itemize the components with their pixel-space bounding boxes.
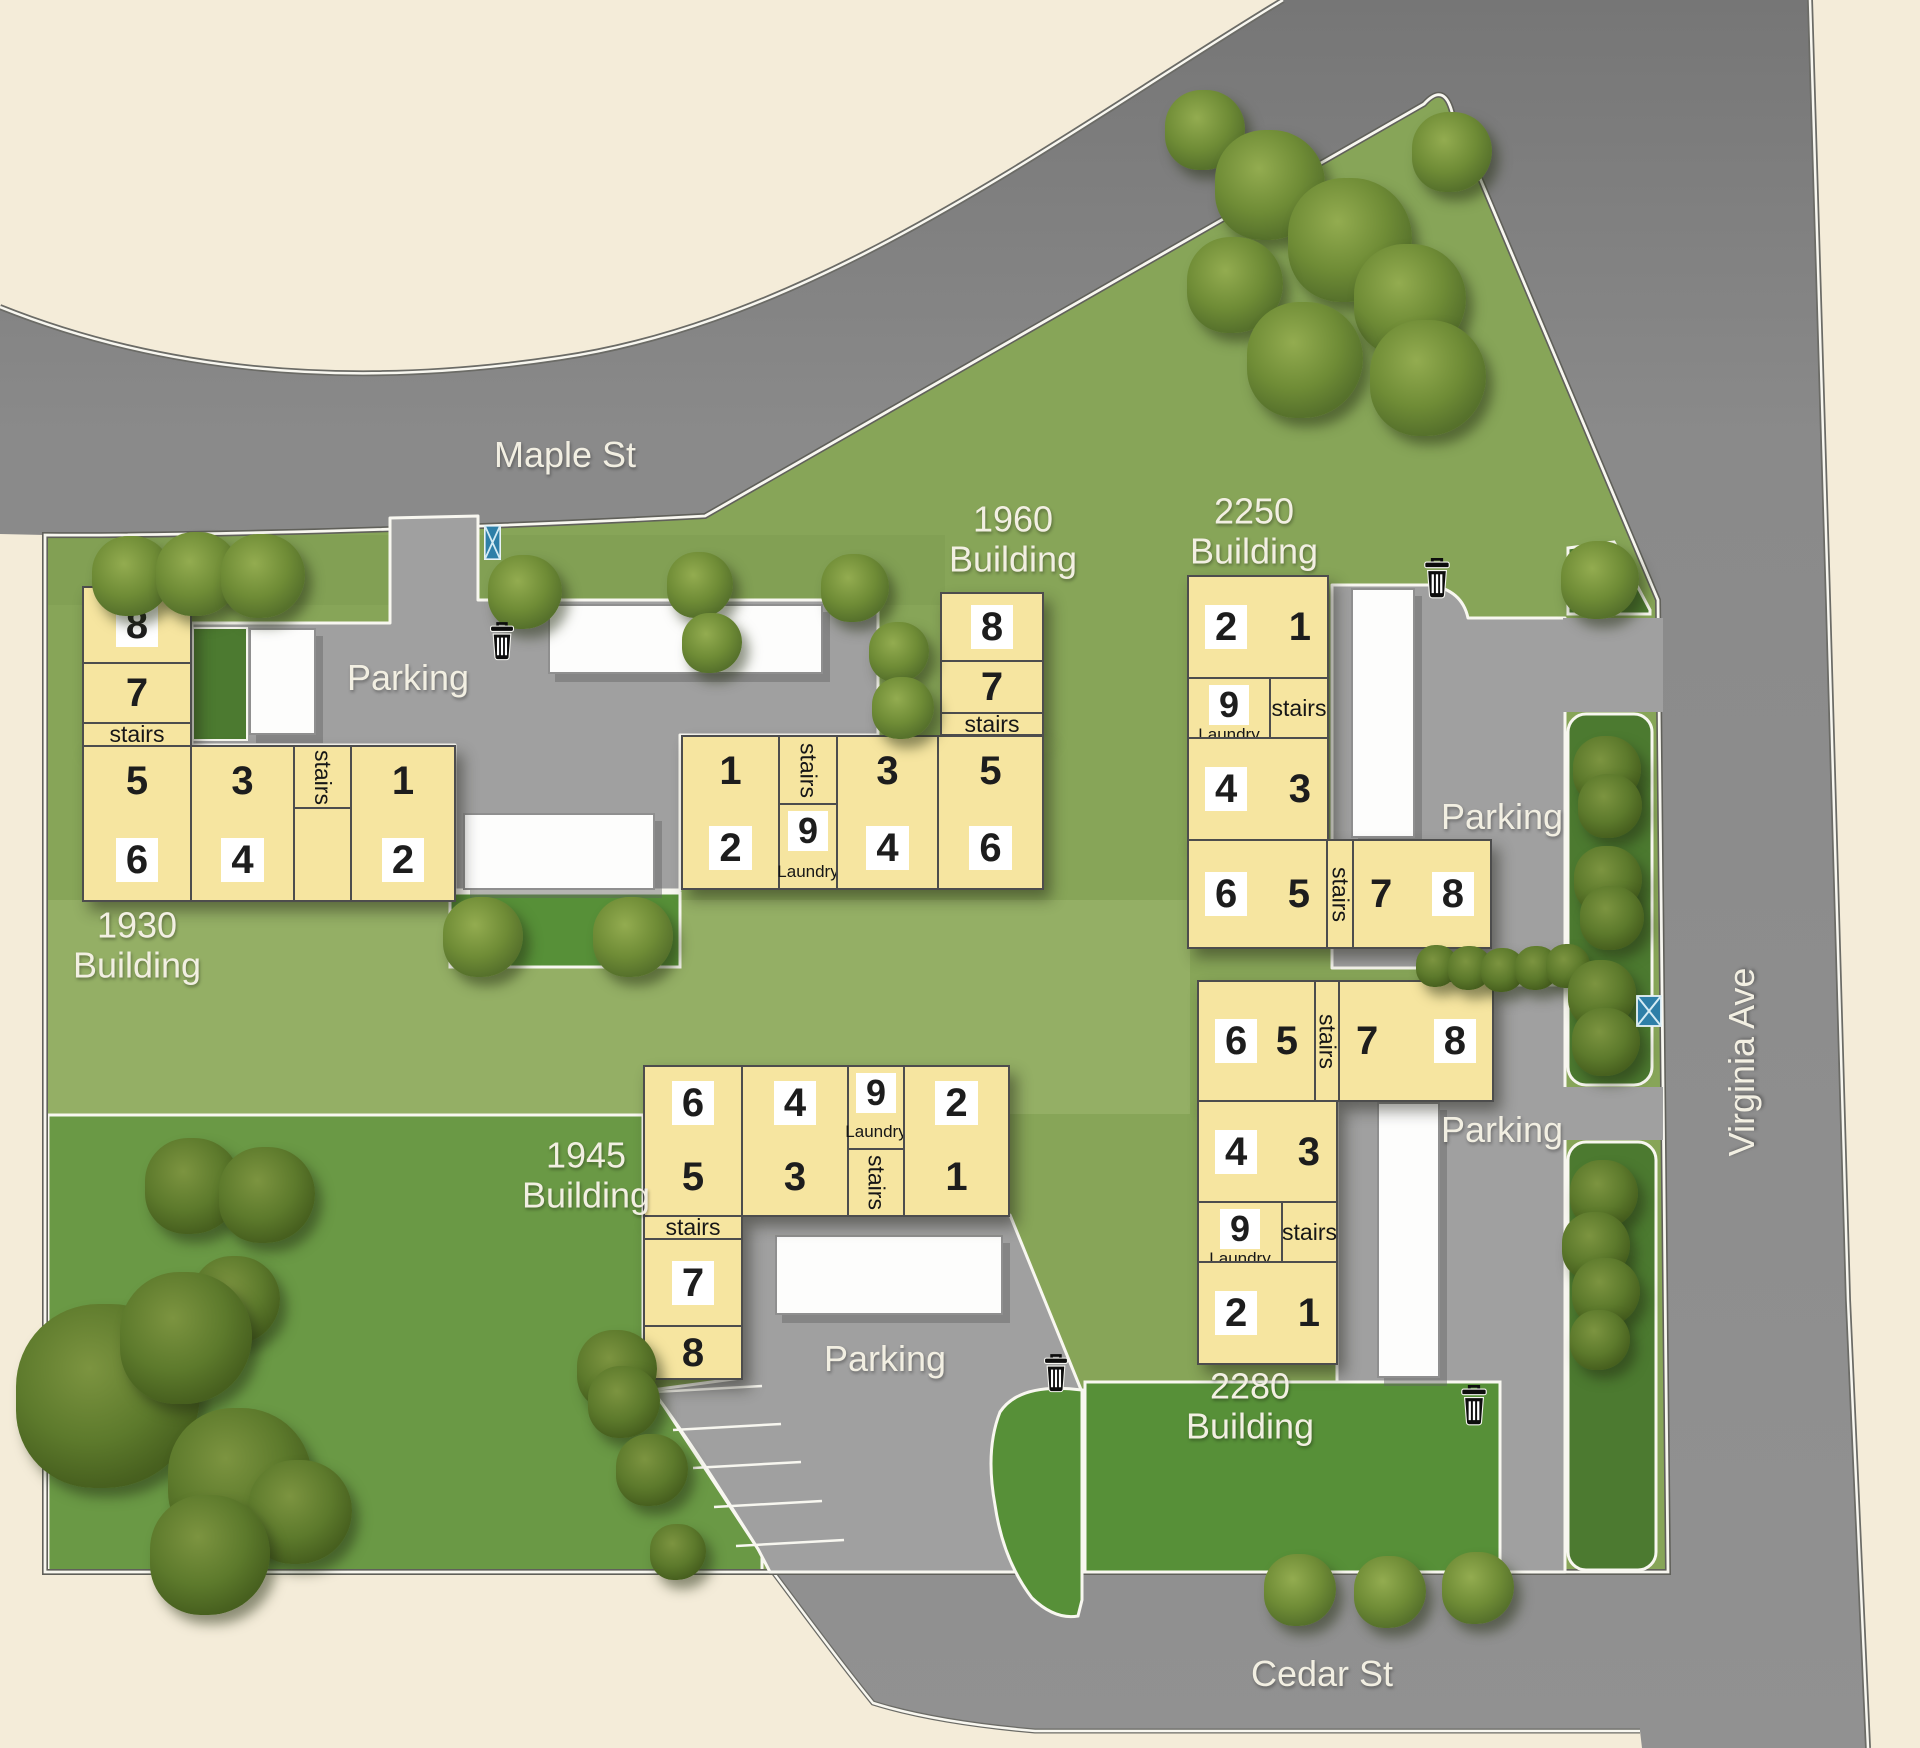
unit-number: 7 [981, 667, 1003, 707]
unit-number: 6 [672, 1081, 714, 1125]
unit-number: 6 [969, 826, 1011, 870]
unit-cell-1930-3-4[interactable]: 3 4 [190, 745, 295, 902]
unit-number: 2 [1205, 605, 1247, 649]
driveway-2250 [1563, 618, 1663, 712]
unit-number: 7 [1370, 874, 1392, 914]
building-label-2250: 2250 Building [1190, 492, 1318, 573]
unit-cell-1960-8[interactable]: 8 [940, 592, 1044, 662]
unit-cell-2250-7-8[interactable]: 7 8 [1352, 839, 1492, 949]
unit-number: 5 [126, 761, 148, 801]
unit-number: 6 [1215, 1019, 1257, 1063]
unit-number: 1 [945, 1157, 967, 1197]
unit-number: 7 [1356, 1021, 1378, 1061]
laundry-label: Laundry [845, 1122, 906, 1142]
unit-cell-1930-7[interactable]: 7 [82, 662, 192, 724]
unit-cell-2280-7-8[interactable]: 7 8 [1338, 980, 1494, 1102]
unit-number: 3 [231, 761, 253, 801]
unit-number: 8 [682, 1333, 704, 1373]
unit-cell-2280-2-1[interactable]: 2 1 [1197, 1261, 1338, 1365]
stairs-2280-mid: stairs [1281, 1201, 1338, 1263]
unit-cell-1930-5-6[interactable]: 5 6 [82, 745, 192, 902]
trash-icon [1458, 1385, 1490, 1427]
laundry-label: Laundry [777, 862, 838, 882]
unit-cell-2280-6-5[interactable]: 6 5 [1197, 980, 1316, 1102]
unit-number: 9 [788, 811, 828, 851]
garage-small [249, 628, 316, 735]
building-label-1960: 1960 Building [949, 500, 1077, 581]
unit-number: 6 [1205, 872, 1247, 916]
unit-number: 5 [682, 1157, 704, 1197]
unit-number: 7 [126, 673, 148, 713]
unit-number: 8 [1432, 872, 1474, 916]
unit-cell-1945-8[interactable]: 8 [643, 1325, 743, 1380]
stairs-1930-column: stairs [293, 745, 352, 809]
garage-1930 [463, 813, 655, 890]
unit-number: 9 [1209, 685, 1249, 725]
stairs-1960-column: stairs [778, 735, 838, 805]
stairs-2280-top: stairs [1314, 980, 1340, 1102]
unit-number: 9 [1220, 1209, 1260, 1249]
parking-label-1945: Parking [824, 1339, 946, 1379]
unit-number: 1 [1289, 607, 1311, 647]
unit-number: 1 [392, 761, 414, 801]
garage-2280 [1377, 1102, 1440, 1378]
building-label-2280: 2280 Building [1186, 1367, 1314, 1448]
unit-number: 2 [935, 1081, 977, 1125]
unit-cell-2250-2-1[interactable]: 2 1 [1187, 575, 1329, 679]
unit-number: 7 [672, 1261, 714, 1305]
parking-label-northwest: Parking [347, 658, 469, 698]
parking-label-2250: Parking [1441, 797, 1563, 837]
unit-number: 1 [719, 751, 741, 791]
driveway-2280 [1563, 1087, 1663, 1140]
unit-cell-1945-7[interactable]: 7 [643, 1238, 743, 1327]
trash-icon [1041, 1354, 1071, 1394]
unit-number: 8 [971, 605, 1013, 649]
unit-cell-2250-6-5[interactable]: 6 5 [1187, 839, 1328, 949]
unit-number: 6 [116, 838, 158, 882]
unit-cell-1930-1-2[interactable]: 1 2 [350, 745, 456, 902]
unit-number: 2 [1215, 1291, 1257, 1335]
unit-cell-1945-4-3[interactable]: 4 3 [741, 1065, 849, 1217]
utility-cell-1930 [293, 807, 352, 902]
hedge-strip [193, 628, 247, 740]
building-label-1930: 1930 Building [73, 906, 201, 987]
street-label-cedar: Cedar St [1251, 1654, 1393, 1694]
stairs-1945-strip: stairs [643, 1215, 743, 1240]
unit-cell-1945-6-5[interactable]: 6 5 [643, 1065, 743, 1217]
unit-cell-2280-4-3[interactable]: 4 3 [1197, 1100, 1338, 1203]
unit-number: 2 [382, 838, 424, 882]
unit-cell-1960-1-2[interactable]: 1 2 [681, 735, 780, 890]
unit-cell-1960-3-4[interactable]: 3 4 [836, 735, 939, 890]
unit-number: 4 [221, 838, 263, 882]
mailbox-icon [1636, 995, 1662, 1027]
trash-icon [487, 622, 517, 662]
garage-2250 [1351, 588, 1415, 838]
unit-number: 8 [1434, 1019, 1476, 1063]
unit-number: 9 [856, 1073, 896, 1113]
unit-number: 4 [774, 1081, 816, 1125]
unit-number: 3 [784, 1157, 806, 1197]
unit-number: 5 [1288, 874, 1310, 914]
unit-cell-1960-5-6[interactable]: 5 6 [937, 735, 1044, 890]
unit-number: 1 [1298, 1293, 1320, 1333]
unit-cell-2250-4-3[interactable]: 4 3 [1187, 737, 1329, 841]
unit-cell-1960-7[interactable]: 7 [940, 660, 1044, 714]
unit-number: 3 [876, 751, 898, 791]
laundry-cell-2280[interactable]: 9 Laundry [1197, 1201, 1283, 1263]
unit-number: 5 [1276, 1021, 1298, 1061]
laundry-cell-1960[interactable]: 9 Laundry [778, 803, 838, 890]
unit-number: 2 [709, 826, 751, 870]
stairs-1960-top: stairs [940, 712, 1044, 736]
parking-label-2280: Parking [1441, 1110, 1563, 1150]
unit-number: 3 [1298, 1132, 1320, 1172]
laundry-cell-2250[interactable]: 9 Laundry [1187, 677, 1271, 739]
unit-cell-1945-2-1[interactable]: 2 1 [903, 1065, 1010, 1217]
building-label-1945: 1945 Building [522, 1136, 650, 1217]
stairs-1945-column: stairs [847, 1148, 905, 1217]
street-label-maple: Maple St [494, 435, 636, 475]
laundry-cell-1945[interactable]: 9 Laundry [847, 1065, 905, 1150]
stairs-2250-mid: stairs [1269, 677, 1329, 739]
stairs-2250-bottom: stairs [1326, 839, 1354, 949]
stairs-1930-top: stairs [82, 722, 192, 747]
mailbox-icon [484, 525, 501, 560]
unit-number: 5 [979, 751, 1001, 791]
street-label-virginia: Virginia Ave [1722, 968, 1762, 1157]
unit-number: 4 [866, 826, 908, 870]
unit-number: 4 [1215, 1130, 1257, 1174]
garage-1945 [775, 1235, 1003, 1315]
site-plan-map: 8 7 stairs 5 6 3 4 stairs 1 2 8 7 stairs… [0, 0, 1920, 1748]
unit-number: 3 [1289, 769, 1311, 809]
unit-number: 4 [1205, 767, 1247, 811]
trash-icon [1421, 558, 1453, 600]
